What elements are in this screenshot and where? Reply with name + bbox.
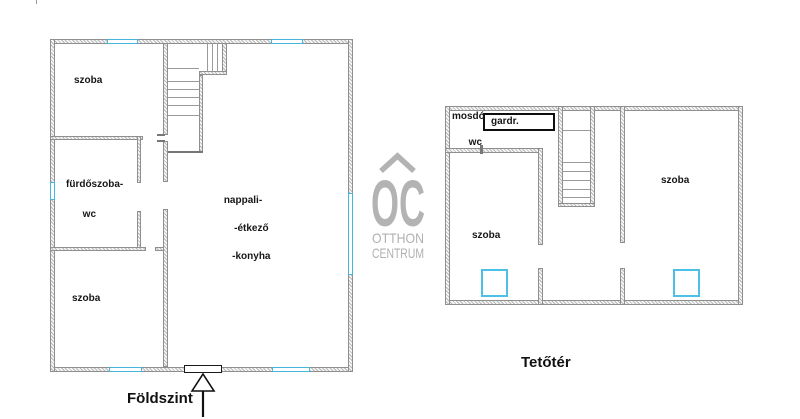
stair-step [563, 197, 590, 198]
stair-step [563, 189, 590, 190]
wall-outer-right [738, 106, 743, 305]
stair-step [168, 97, 199, 98]
floor-title-ground: Földszint [127, 390, 193, 407]
room-label-washroom-line2: wc [469, 137, 482, 148]
watermark-logo: OC OTTHON CENTRUM [366, 152, 430, 262]
stair-step-vertical [207, 43, 208, 72]
wall-bathroom-right-upper [137, 136, 141, 183]
watermark-brand-line2: CENTRUM [372, 245, 424, 261]
window [348, 193, 353, 275]
wall-bathroom-bottom [50, 247, 146, 251]
wall-stair-bottom [558, 203, 595, 207]
room-label-living-line2: -étkező [234, 223, 268, 234]
wall-bathroom-top [50, 136, 143, 140]
watermark-logo-text: OC [371, 166, 425, 240]
window [109, 367, 142, 372]
room-label-bathroom-line2: wc [83, 209, 96, 220]
stair-step [168, 105, 199, 106]
entrance-arrow-icon [189, 372, 217, 418]
wall-stair-right [590, 106, 595, 207]
stair-step [168, 115, 199, 116]
window [272, 367, 310, 372]
floor-title-attic: Tetőtér [521, 354, 571, 371]
watermark-brand-line1: OTTHON [372, 230, 424, 246]
roof-window [673, 269, 700, 297]
room-label-living-line3: -konyha [232, 251, 270, 262]
room-label-bathroom-line1: fürdőszoba- [66, 179, 123, 190]
wall-stair-extension-bottom [199, 71, 227, 75]
wall-central-middle [163, 141, 168, 182]
wall-stair-left [558, 106, 563, 207]
wall-outer-left [50, 39, 55, 372]
room-label-bedroom-bottom: szoba [72, 293, 100, 305]
room-label-washroom: mosdó wc [452, 110, 485, 162]
stair-step [563, 162, 590, 163]
room-label-bedroom-left: szoba [472, 230, 500, 242]
stair-shaft-bottom-line [168, 151, 203, 153]
floor-plan-canvas: szoba fürdőszoba- wc nappali- -étkező -k… [0, 0, 800, 419]
stair-step [563, 180, 590, 181]
artifact-tick [36, 0, 37, 4]
stair-step [563, 171, 590, 172]
wall-outer-left [445, 106, 450, 305]
stair-step [168, 89, 199, 90]
stair-step [168, 68, 199, 69]
wall-right-room-left-upper [620, 106, 625, 243]
wall-stair-shaft-right [199, 75, 203, 153]
stair-step-vertical [212, 43, 213, 72]
window [107, 39, 138, 44]
room-label-bedroom-top: szoba [74, 75, 102, 87]
wall-outer-bottom [445, 300, 743, 305]
stair-step-vertical [217, 43, 218, 72]
stair-step [168, 81, 199, 82]
room-label-living-line1: nappali- [224, 195, 262, 206]
door-tick [157, 140, 165, 142]
window [271, 39, 303, 44]
wall-central-lower [163, 209, 168, 367]
wall-outer-top [50, 39, 353, 44]
wardrobe-box: gardr. [483, 113, 555, 131]
wall-left-room-right-upper [538, 148, 543, 245]
stair-step [563, 130, 590, 131]
wall-bathroom-right-lower [137, 211, 141, 251]
room-label-washroom-line1: mosdó [452, 111, 485, 122]
roof-window [481, 269, 508, 297]
window [50, 182, 55, 200]
room-label-bathroom: fürdőszoba- wc [66, 177, 123, 237]
door-tick [157, 134, 165, 136]
room-label-wardrobe: gardr. [491, 116, 519, 127]
room-label-bedroom-right: szoba [661, 175, 689, 187]
wall-left-room-right-lower [538, 268, 543, 305]
wall-right-room-left-lower [620, 268, 625, 305]
room-label-living: nappali- -étkező -konyha [201, 194, 285, 278]
